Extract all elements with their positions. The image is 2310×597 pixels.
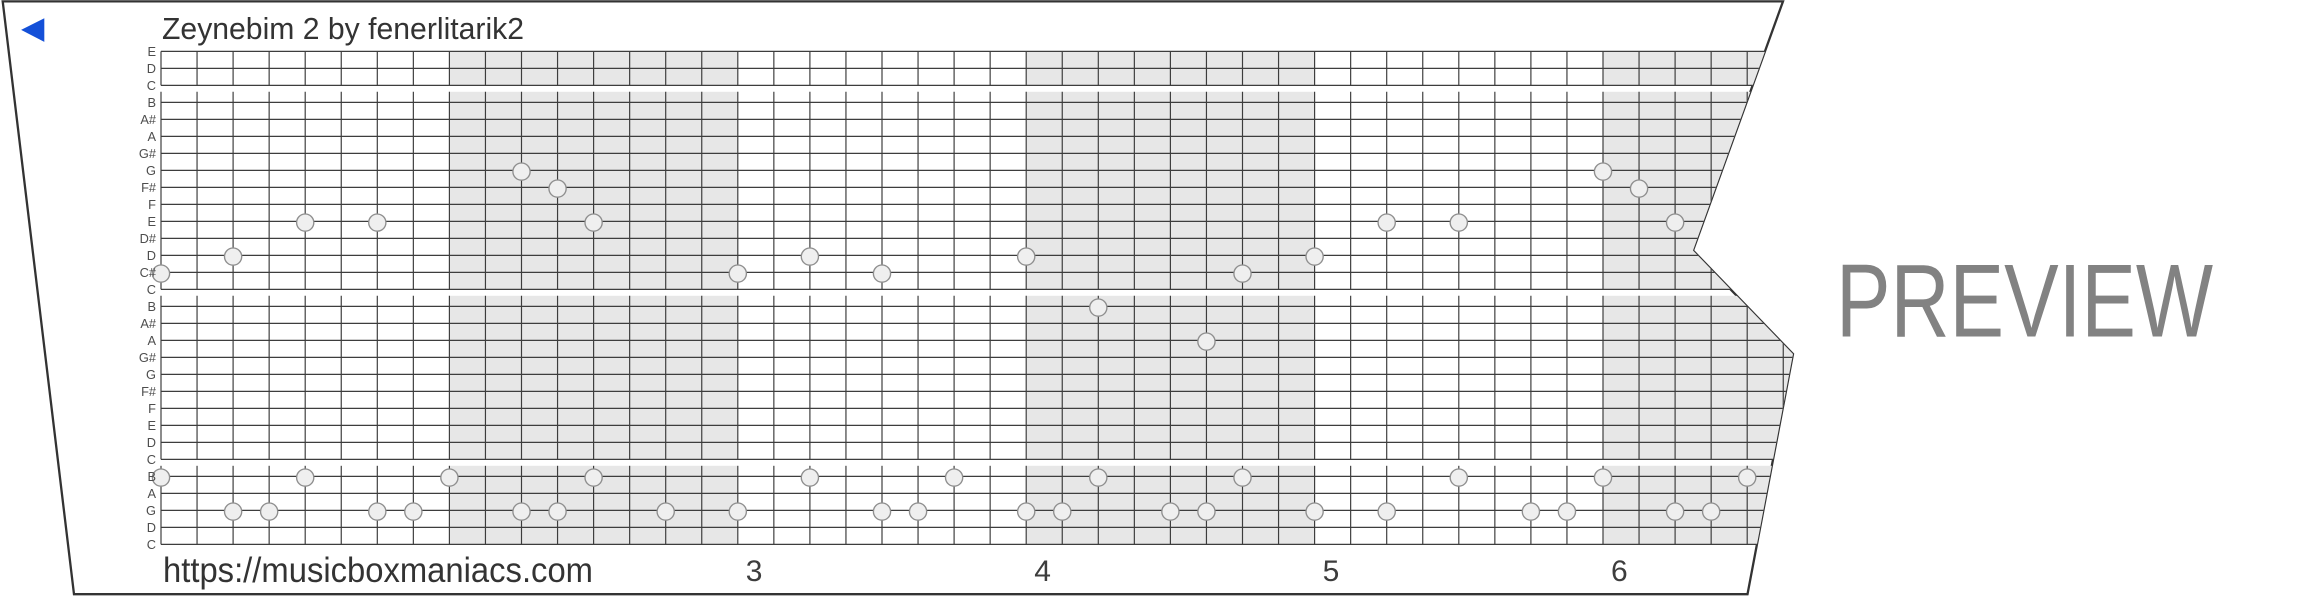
- svg-text:4: 4: [1034, 555, 1051, 588]
- svg-text:A#: A#: [140, 112, 157, 127]
- svg-text:D: D: [147, 435, 156, 450]
- svg-text:G: G: [146, 503, 156, 518]
- svg-text:5: 5: [1323, 555, 1340, 588]
- svg-text:A: A: [147, 486, 156, 501]
- svg-text:C#: C#: [140, 265, 157, 280]
- svg-text:F: F: [148, 401, 156, 416]
- svg-text:https://musicboxmaniacs.com: https://musicboxmaniacs.com: [163, 551, 593, 590]
- svg-text:G#: G#: [139, 350, 157, 365]
- svg-text:B: B: [147, 299, 156, 314]
- svg-text:E: E: [147, 214, 156, 229]
- svg-text:3: 3: [746, 555, 763, 588]
- svg-text:F: F: [148, 197, 156, 212]
- svg-text:C: C: [147, 78, 156, 93]
- svg-text:PREVIEW: PREVIEW: [1836, 244, 2213, 360]
- svg-text:B: B: [147, 95, 156, 110]
- svg-text:A: A: [147, 129, 156, 144]
- svg-text:D: D: [147, 248, 156, 263]
- svg-text:Zeynebim 2 by fenerlitarik2: Zeynebim 2 by fenerlitarik2: [162, 11, 524, 46]
- svg-text:E: E: [147, 44, 156, 59]
- svg-text:B: B: [147, 469, 156, 484]
- svg-text:D: D: [147, 520, 156, 535]
- svg-text:A: A: [147, 333, 156, 348]
- svg-text:G#: G#: [139, 146, 157, 161]
- svg-text:A#: A#: [140, 316, 157, 331]
- svg-text:C: C: [147, 537, 156, 552]
- svg-text:E: E: [147, 418, 156, 433]
- svg-text:G: G: [146, 163, 156, 178]
- svg-text:F#: F#: [141, 180, 157, 195]
- svg-text:D#: D#: [140, 231, 157, 246]
- svg-text:D: D: [147, 61, 156, 76]
- svg-text:6: 6: [1611, 555, 1628, 588]
- svg-text:C: C: [147, 282, 156, 297]
- svg-text:F#: F#: [141, 384, 157, 399]
- svg-text:G: G: [146, 367, 156, 382]
- svg-text:C: C: [147, 452, 156, 467]
